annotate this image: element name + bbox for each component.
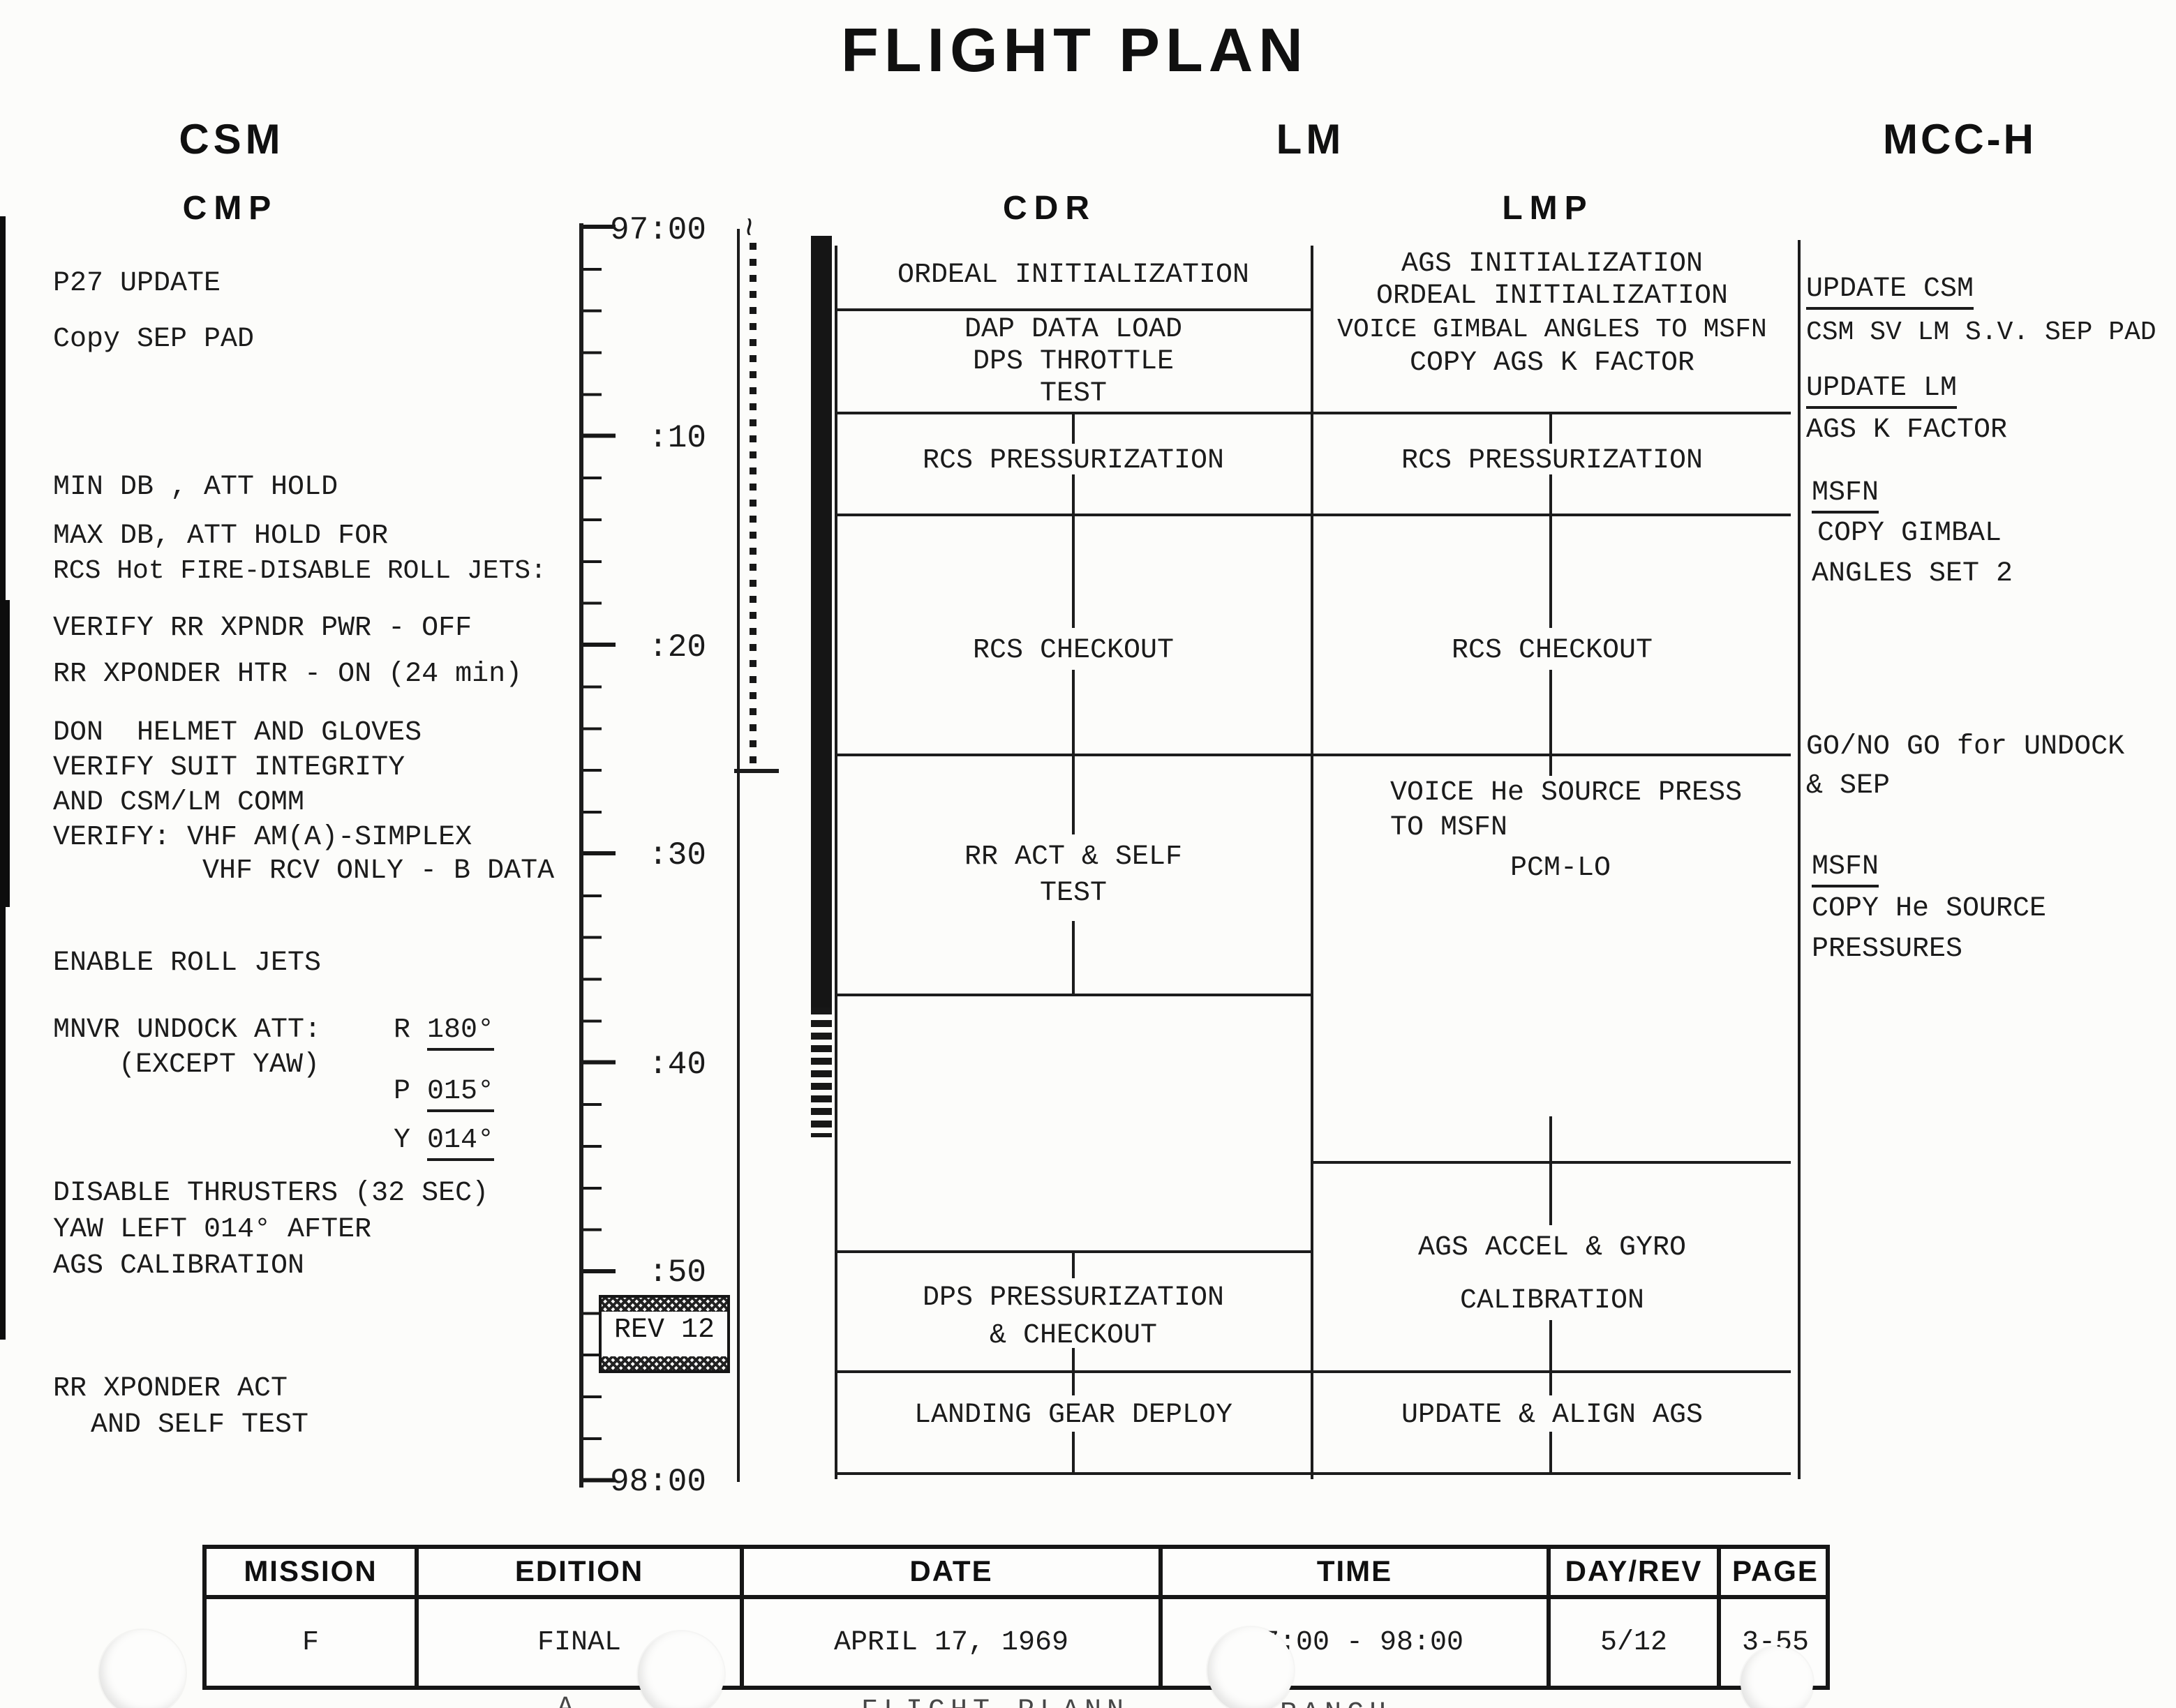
lmp-activity: RCS CHECKOUT [1452,634,1653,668]
lmp-mcch-separator [1798,240,1801,1479]
cmp-note: Copy SEP PAD [53,322,254,357]
cdr-divider [836,994,1312,996]
cdr-activity: RCS CHECKOUT [973,634,1174,668]
cmp-note: VERIFY SUIT INTEGRITY [53,751,405,786]
rev-badge-hatch-bottom [602,1356,727,1370]
lmp-activity: COPY AGS K FACTOR [1410,346,1694,381]
rev-badge-label: REV 12 [602,1312,727,1351]
lmp-divider [1313,1370,1791,1373]
table-header-date: DATE [744,1549,1163,1599]
table-value-date: APRIL 17, 1969 [744,1599,1163,1686]
mcch-underlined: MSFN [1812,851,1879,887]
pitch-value: 015° [427,1076,494,1112]
cdr-connector [1072,670,1075,754]
lmp-connector [1549,412,1552,444]
cdr-activity: LANDING GEAR DEPLOY [914,1398,1232,1433]
lmp-connector [1549,1432,1552,1472]
column-header-mcch: MCC-H [1883,117,2036,165]
cdr-activity: RCS PRESSURIZATION [923,444,1224,479]
footer-stray-letter: A [557,1691,578,1708]
lmp-connector [1549,1116,1552,1161]
lmp-connector [1549,670,1552,754]
mcch-note: MSFN [1812,476,1879,511]
mcch-note: UPDATE CSM [1806,272,1974,307]
page-title: FLIGHT PLAN [841,17,1309,87]
cmp-note: VHF RCV ONLY - B DATA [202,854,554,889]
cdr-connector [1072,514,1075,628]
cdr-divider [836,308,1312,311]
timeline-label-9800: 98:00 [609,1465,706,1500]
dotted-event-line [750,243,757,770]
lmp-divider [1313,412,1791,414]
cmp-note: P27 UPDATE [53,267,221,301]
rev-12-badge: REV 12 [599,1295,730,1373]
timeline-label-30: :30 [609,839,706,874]
mcch-note: GO/NO GO for UNDOCK [1806,730,2124,765]
cdr-lmp-separator [1311,246,1313,1479]
cmp-note: VERIFY: VHF AM(A)-SIMPLEX [53,821,472,855]
lmp-activity: TO MSFN [1390,811,1507,846]
table-value-mission: F [207,1599,419,1686]
hole-punch [99,1630,186,1708]
mnvr-pitch-row: P 015° [394,1074,494,1109]
footer-info-table: MISSION EDITION DATE TIME DAY/REV PAGE F… [202,1545,1830,1690]
lmp-divider [1313,1161,1791,1164]
subcolumn-header-cdr: CDR [1003,190,1096,229]
activity-duration-bar-striped [811,1007,832,1137]
timeline-label-50: :50 [609,1256,706,1291]
column-header-csm: CSM [179,117,284,165]
cdr-activity: TEST [1040,876,1107,911]
cdr-activity: DPS THROTTLE [973,345,1174,380]
mcch-note: ANGLES SET 2 [1812,557,2013,592]
cdr-activity: & CHECKOUT [990,1319,1157,1354]
cmp-note: YAW LEFT 014° AFTER [53,1213,371,1248]
table-header-page: PAGE [1721,1549,1830,1599]
squiggle-mark: ~ [728,217,763,237]
cmp-note: AGS CALIBRATION [53,1249,304,1284]
dotted-line-end-mark [734,769,779,773]
cmp-note: AND SELF TEST [91,1408,308,1443]
mcch-underlined: UPDATE LM [1806,373,1957,409]
table-header-dayrev: DAY/REV [1551,1549,1721,1599]
cmp-note: VERIFY RR XPNDR PWR - OFF [53,611,472,646]
lmp-activity: CALIBRATION [1460,1284,1644,1319]
mnvr-yaw-row: Y 014° [394,1123,494,1158]
column-header-lm: LM [1276,117,1346,165]
cmp-note: RR XPONDER ACT [53,1372,288,1407]
mcch-note: CSM SV LM S.V. SEP PAD [1806,315,2156,350]
mcch-note: PRESSURES [1812,932,1962,967]
rev-badge-hatch-top [602,1298,727,1312]
mcch-underlined: MSFN [1812,477,1879,514]
timeline-label-10: :10 [609,421,706,456]
roll-value: 180° [427,1014,494,1051]
timeline-label-20: :20 [609,631,706,666]
cdr-connector [1072,921,1075,994]
lmp-connector [1549,514,1552,628]
activity-duration-bar-solid [811,236,832,1007]
hole-punch [1207,1627,1294,1708]
mcch-note: COPY GIMBAL [1817,516,2002,551]
subcolumn-header-lmp: LMP [1502,190,1593,229]
cmp-note: AND CSM/LM COMM [53,786,304,821]
lmp-divider [1313,514,1791,516]
document-sheet: FLIGHT PLAN CSM LM MCC-H CMP CDR LMP 97:… [0,0,2176,1708]
timeline-label-40: :40 [609,1048,706,1083]
lmp-activity: AGS ACCEL & GYRO [1418,1231,1686,1266]
lmp-divider [1313,754,1791,756]
cmp-note: ENABLE ROLL JETS [53,946,321,981]
lmp-activity: UPDATE & ALIGN AGS [1401,1398,1703,1433]
scanned-flight-plan-page: FLIGHT PLAN CSM LM MCC-H CMP CDR LMP 97:… [0,0,2176,1708]
table-value-dayrev: 5/12 [1551,1599,1721,1686]
mnvr-undock-att-label: MNVR UNDOCK ATT: [53,1013,321,1048]
cmp-note: DON HELMET AND GLOVES [53,716,422,751]
mcch-note: MSFN [1812,850,1879,885]
mcch-note: AGS K FACTOR [1806,413,2007,448]
yaw-axis-label: Y [394,1125,427,1157]
pitch-axis-label: P [394,1076,427,1108]
cdr-activity: ORDEAL INITIALIZATION [897,258,1249,293]
mcch-underlined: UPDATE CSM [1806,274,1974,310]
footer-branch-left: FLIGHT PLANN [861,1694,1129,1708]
scan-edge-artifact [0,600,10,907]
lmp-activity: VOICE GIMBAL ANGLES TO MSFN [1337,313,1767,347]
mcch-note: UPDATE LM [1806,371,1957,406]
lmp-connector [1549,1161,1552,1225]
cmp-note: RCS Hot FIRE-DISABLE ROLL JETS: [53,554,546,589]
table-header-mission: MISSION [207,1549,419,1599]
cdr-activity: RR ACT & SELF [964,840,1182,875]
cdr-activity: DPS PRESSURIZATION [923,1281,1224,1316]
lmp-activity: VOICE He SOURCE PRESS [1390,776,1742,811]
subcolumn-header-cmp: CMP [183,190,278,229]
mnvr-roll-row: R 180° [394,1013,494,1048]
cdr-activity: DAP DATA LOAD [964,313,1182,347]
lmp-connector [1549,1370,1552,1395]
cdr-connector [1072,412,1075,444]
lmp-activity: PCM-LO [1510,851,1611,886]
lmp-activity: AGS INITIALIZATION [1401,247,1703,282]
cdr-connector [1072,1250,1075,1278]
cdr-divider [836,1472,1312,1475]
lmp-divider [1313,1472,1791,1475]
table-header-time: TIME [1163,1549,1551,1599]
cdr-connector [1072,1432,1075,1472]
lmp-connector [1549,1320,1552,1370]
cdr-connector [1072,1370,1075,1395]
cdr-box-left-edge [835,246,837,1479]
lmp-activity: RCS PRESSURIZATION [1401,444,1703,479]
cdr-activity: TEST [1040,377,1107,412]
yaw-value: 014° [427,1125,494,1161]
cmp-note: RR XPONDER HTR - ON (24 min) [53,657,522,692]
mcch-note: COPY He SOURCE [1812,892,2046,927]
timeline-label-9700: 97:00 [609,213,706,248]
cdr-connector [1072,754,1075,834]
table-header-edition: EDITION [419,1549,744,1599]
cmp-note: MIN DB , ATT HOLD [53,470,338,505]
lmp-connector [1549,754,1552,776]
cmp-note: DISABLE THRUSTERS (32 SEC) [53,1176,489,1211]
roll-axis-label: R [394,1014,427,1047]
separator-line-left [737,229,740,1482]
lmp-activity: ORDEAL INITIALIZATION [1376,279,1728,314]
cmp-note: MAX DB, ATT HOLD FOR [53,519,388,554]
mnvr-except-yaw: (EXCEPT YAW) [119,1048,320,1083]
mcch-note: & SEP [1806,769,1890,804]
